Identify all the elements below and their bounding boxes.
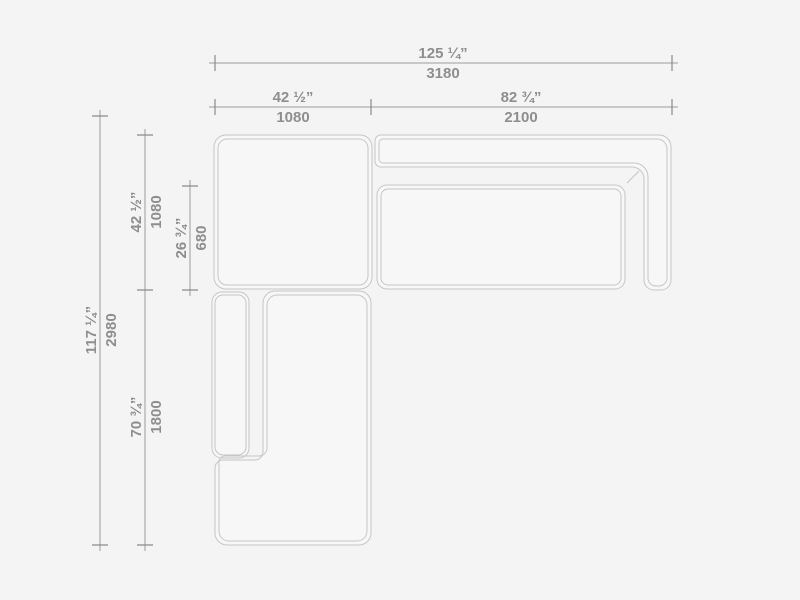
bottom-module-back-cushion-outline (212, 292, 249, 458)
dim-right-module-width-label-metric: 2100 (504, 109, 537, 126)
dimension-lines: 125 ¼” 3180 42 ½” 1080 82 ¾” 2100 117 ¼”… (83, 45, 678, 551)
dim-top-module-depth-label-metric: 1080 (148, 195, 165, 228)
dim-left-module-width-label-imperial: 42 ½” (273, 89, 314, 106)
dim-left-module-width-label-metric: 1080 (276, 109, 309, 126)
dim-overall-width-label-imperial: 125 ¼” (418, 45, 467, 62)
dim-overall-depth-label-metric: 2980 (103, 313, 120, 346)
corner-module-outline (214, 135, 372, 289)
right-module-miter-seam (627, 171, 639, 183)
dim-bottom-module-length-label-metric: 1800 (148, 400, 165, 433)
dim-overall-depth-label-imperial: 117 ¼” (83, 306, 100, 354)
dim-seat-depth-label-metric: 680 (193, 225, 210, 250)
dim-top-module-depth-label-imperial: 42 ½” (128, 192, 145, 233)
dim-right-module-width-label-imperial: 82 ¾” (501, 89, 542, 106)
sofa-modules (212, 135, 671, 545)
right-module-seat-outline (377, 185, 625, 289)
dim-bottom-module-length-label-imperial: 70 ¾” (128, 397, 145, 438)
sofa-dimension-diagram: 125 ¼” 3180 42 ½” 1080 82 ¾” 2100 117 ¼”… (0, 0, 800, 600)
dim-seat-depth-label-imperial: 26 ¾” (173, 218, 190, 259)
dim-overall-width-label-metric: 3180 (426, 65, 459, 82)
